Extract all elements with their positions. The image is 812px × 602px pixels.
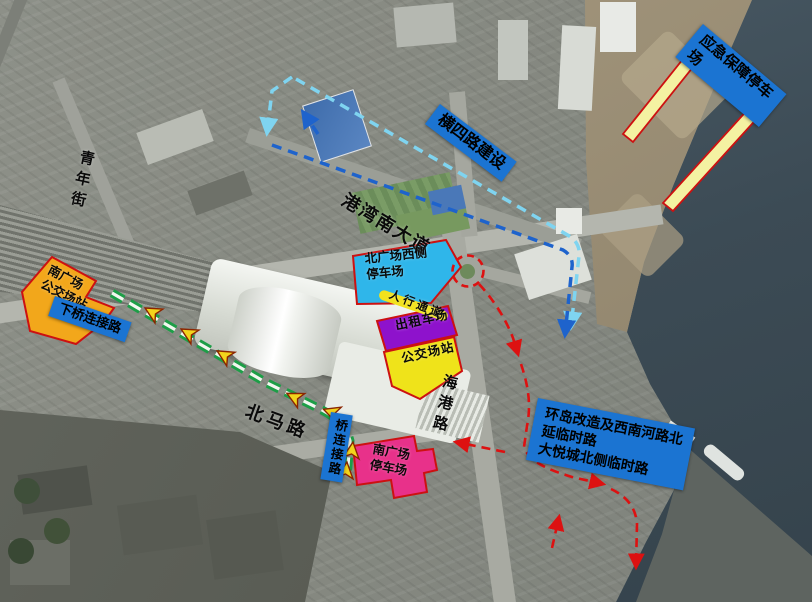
label-south-square-parking: 南广场 停车场 <box>369 442 411 479</box>
zone-emergency-strip-2 <box>663 106 761 211</box>
route-red-branch-up <box>552 517 559 548</box>
route-green <box>112 293 350 477</box>
route-red <box>611 489 637 567</box>
annotated-satellite-map: 应急保障停车场 横四路建设 港湾南大道 青年街 北广场西侧 停车场 人行通道 南… <box>0 0 812 602</box>
route-red <box>479 284 518 354</box>
route-lightblue <box>267 77 292 133</box>
route-green-center <box>112 293 350 477</box>
label-north-square-west-parking: 北广场西侧 停车场 <box>364 245 429 283</box>
route-red-branch-west <box>456 442 505 452</box>
route-blue-arrow <box>303 112 318 134</box>
